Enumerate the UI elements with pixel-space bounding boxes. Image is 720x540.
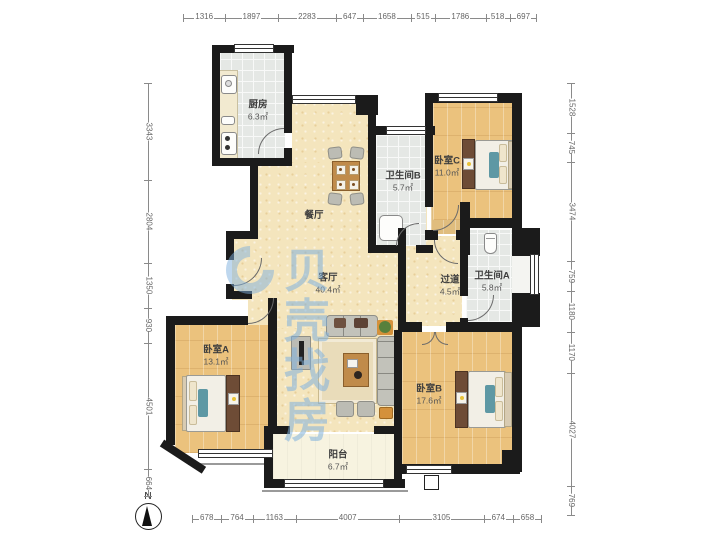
coffee-table-kettle — [354, 371, 362, 379]
balcony-outer-line — [262, 490, 408, 492]
dimension-segment: 664 — [141, 469, 155, 497]
room-label-bedroom-c: 卧室C11.0㎡ — [434, 155, 460, 178]
floor-white — [512, 254, 532, 294]
compass-needle-icon — [142, 506, 152, 526]
dimension-value: 664 — [143, 476, 154, 489]
dimension-segment: 745 — [564, 133, 578, 163]
sofa-pillow — [334, 318, 346, 328]
wall — [468, 218, 519, 228]
dimension-segment: 759 — [564, 261, 578, 291]
window — [284, 479, 384, 488]
tv — [299, 341, 304, 365]
dimension-value: 4027 — [566, 420, 577, 438]
dimension-segment: 1316 — [183, 10, 225, 25]
compass-circle — [135, 503, 162, 530]
dimension-segment: 1350 — [141, 263, 155, 308]
ruler-right: 15287453474759118011704027769 — [564, 83, 578, 516]
ac-platform — [424, 475, 439, 490]
dimension-value: 2804 — [143, 212, 154, 230]
dimension-value: 930 — [143, 319, 154, 332]
dimension-segment: 3105 — [399, 511, 483, 526]
sofa-pillow — [354, 318, 368, 328]
pillow — [495, 401, 503, 421]
dimension-value: 1658 — [377, 13, 397, 22]
dimension-value: 1528 — [566, 99, 577, 117]
wall — [368, 131, 376, 253]
coffee-table-book — [347, 359, 358, 368]
ottoman — [336, 401, 354, 417]
dimension-segment: 764 — [221, 511, 252, 526]
stove-burner — [225, 136, 230, 141]
pillow — [189, 405, 197, 425]
wall — [166, 316, 175, 445]
ottoman — [357, 401, 375, 417]
dimension-value: 4007 — [338, 514, 358, 523]
window — [530, 254, 539, 295]
wall — [368, 245, 398, 253]
wall — [502, 450, 520, 472]
window — [234, 44, 274, 53]
dimension-value: 1170 — [566, 344, 577, 361]
wall — [425, 230, 438, 240]
pillow — [189, 381, 197, 401]
dimension-segment: 2804 — [141, 180, 155, 263]
room-label-bedroom-b: 卧室B17.6㎡ — [416, 383, 442, 406]
dimension-value: 678 — [199, 514, 214, 523]
dining-chair — [349, 146, 364, 160]
dimension-value: 515 — [415, 13, 430, 22]
wall — [416, 245, 433, 253]
headboard-bedroom-b — [504, 372, 512, 427]
dining-chair — [327, 192, 342, 206]
kitchen-stove — [221, 132, 237, 155]
dimension-value: 518 — [490, 13, 505, 22]
dimension-segment: 4027 — [564, 373, 578, 486]
kitchen-faucet — [225, 80, 232, 87]
dimension-segment: 678 — [192, 511, 221, 526]
window — [406, 465, 452, 474]
wall — [166, 316, 248, 325]
dimension-value: 759 — [566, 270, 577, 283]
dimension-value: 1163 — [265, 514, 284, 523]
dining-chair — [349, 192, 364, 206]
compass-north-indicator: N — [130, 491, 166, 537]
dimension-value: 1897 — [242, 13, 262, 22]
wall — [512, 93, 522, 236]
room-label-kitchen: 厨房6.3㎡ — [248, 99, 268, 122]
dimension-segment: 1658 — [363, 10, 411, 25]
wall — [425, 93, 433, 207]
wall — [226, 238, 234, 260]
dimension-value: 4501 — [143, 397, 154, 415]
bed-throw — [485, 385, 495, 413]
room-label-hallway: 过道4.5㎡ — [440, 274, 460, 297]
dimension-value: 3343 — [143, 122, 154, 140]
nightstand-bedroom-b — [456, 392, 467, 404]
window — [386, 126, 426, 135]
potted-plant — [377, 320, 393, 335]
dimension-value: 1786 — [450, 13, 470, 22]
dimension-segment: 1786 — [435, 10, 485, 25]
side-table — [379, 407, 393, 419]
dimension-segment: 658 — [513, 511, 542, 526]
dimension-value: 745 — [566, 141, 577, 154]
pillow — [499, 144, 507, 162]
toilet-bathroom-a — [484, 233, 497, 254]
room-label-bathroom-b: 卫生间B5.7㎡ — [385, 170, 420, 193]
dimension-value: 647 — [342, 13, 357, 22]
dimension-segment: 518 — [486, 10, 510, 25]
dining-table — [332, 161, 360, 191]
dimension-segment: 4007 — [296, 511, 399, 526]
dimension-segment: 647 — [336, 10, 362, 25]
dimension-segment: 3474 — [564, 162, 578, 261]
floorplan-canvas: 厨房6.3㎡ 餐厅 卫生间B5.7㎡ 卧室C11.0㎡ 客厅40.4㎡ 过道4.… — [0, 0, 720, 540]
wall — [226, 284, 234, 298]
kitchen-shelf — [221, 116, 235, 125]
dimension-segment: 1528 — [564, 83, 578, 133]
dimension-value: 1350 — [143, 276, 154, 294]
dimension-value: 769 — [566, 494, 577, 507]
dimension-value: 697 — [516, 13, 531, 22]
dimension-segment: 697 — [510, 10, 537, 25]
wall — [460, 253, 468, 296]
wall — [460, 202, 470, 255]
wall — [268, 298, 277, 432]
nightstand-bedroom-a — [228, 393, 239, 405]
dimension-segment: 1170 — [564, 332, 578, 373]
toilet-tank-line — [486, 238, 495, 239]
ruler-bottom: 678764116340073105674658 — [192, 511, 542, 526]
wall — [446, 322, 520, 332]
bed-throw — [198, 389, 208, 417]
window — [198, 449, 273, 458]
dimension-segment: 674 — [484, 511, 513, 526]
room-label-balcony: 阳台6.7㎡ — [328, 449, 348, 472]
window — [438, 93, 498, 102]
wall — [284, 148, 292, 166]
dimension-segment: 1180 — [564, 291, 578, 332]
dining-chair — [327, 146, 342, 160]
dimension-segment: 4501 — [141, 343, 155, 469]
dimension-segment: 3343 — [141, 83, 155, 180]
dimension-value: 3474 — [566, 203, 577, 221]
window — [292, 95, 356, 104]
room-label-bedroom-a: 卧室A13.1㎡ — [203, 344, 229, 367]
dimension-segment: 515 — [411, 10, 435, 25]
dimension-segment: 1897 — [225, 10, 277, 25]
wall — [284, 45, 292, 133]
room-label-bathroom-a: 卫生间A5.8㎡ — [474, 270, 509, 293]
dimension-segment: 769 — [564, 486, 578, 516]
dimension-value: 2283 — [297, 13, 317, 22]
nightstand-bedroom-c — [463, 158, 474, 170]
bed-throw — [489, 152, 499, 178]
ruler-top: 13161897228364716585151786518697 — [183, 10, 537, 25]
dimension-value: 1180 — [566, 303, 577, 320]
room-label-living: 客厅40.4㎡ — [315, 272, 340, 295]
wall — [212, 45, 220, 166]
pillow — [499, 166, 507, 184]
dimension-segment: 2283 — [278, 10, 337, 25]
dimension-segment: 1163 — [253, 511, 296, 526]
room-label-dining: 餐厅 — [304, 210, 323, 222]
dimension-value: 1316 — [194, 13, 214, 22]
wall — [512, 228, 540, 256]
pillow — [495, 377, 503, 397]
stove-burner — [225, 145, 230, 150]
wall — [250, 158, 258, 236]
dimension-segment: 930 — [141, 308, 155, 343]
dimension-value: 674 — [491, 514, 506, 523]
dimension-value: 3105 — [432, 514, 452, 523]
dimension-value: 658 — [520, 514, 535, 523]
dimension-value: 764 — [229, 514, 244, 523]
ruler-left: 3343280413509304501664 — [141, 83, 155, 497]
